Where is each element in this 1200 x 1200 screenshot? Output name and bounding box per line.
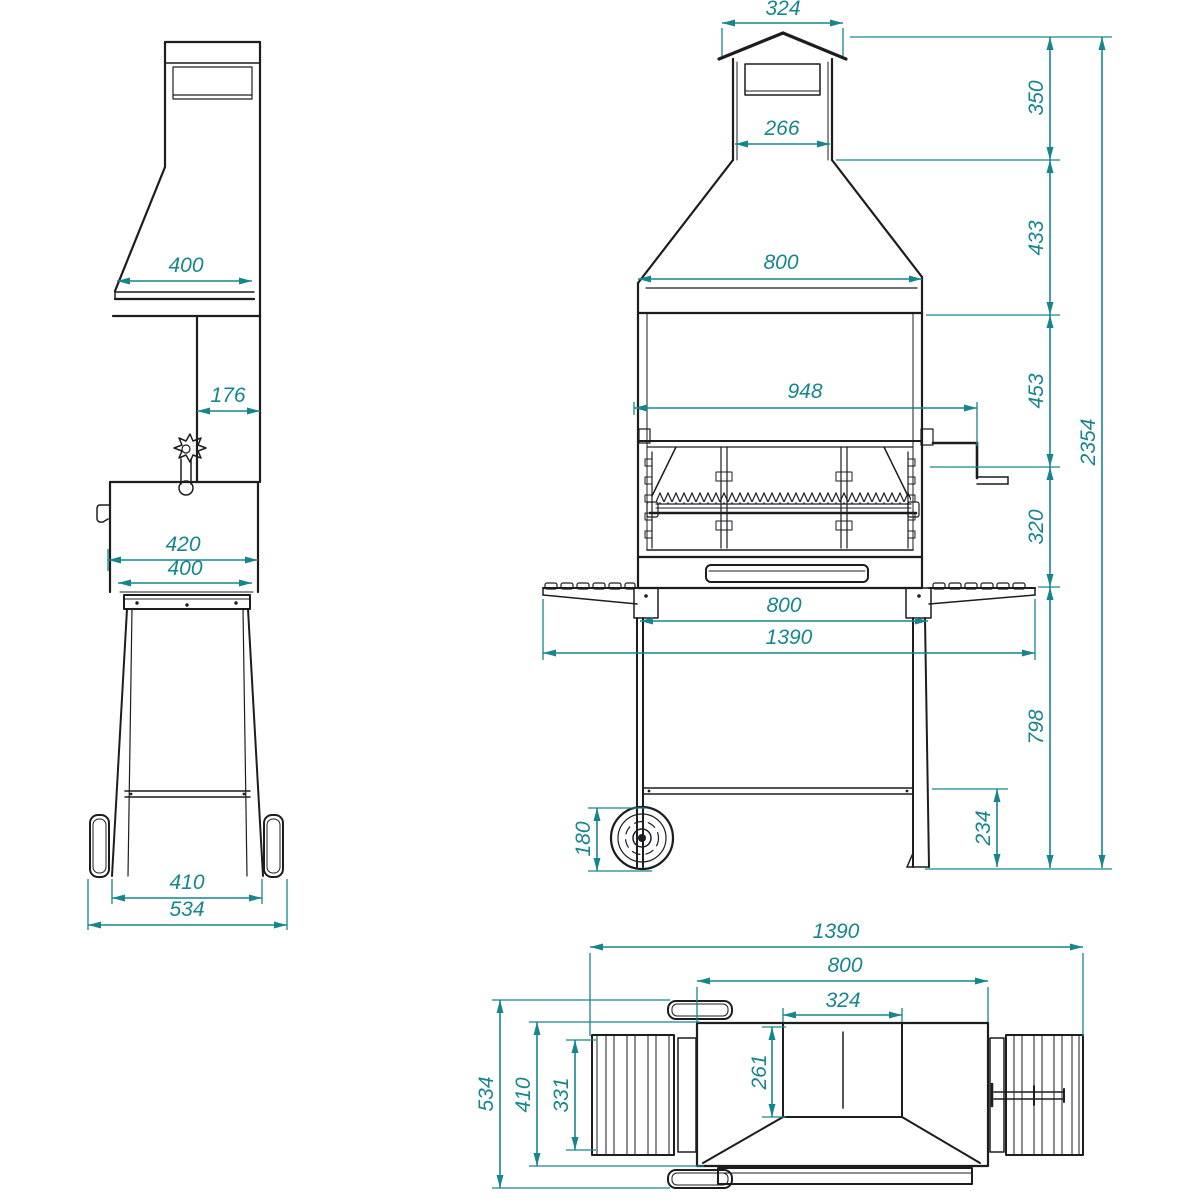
dim-top-flue-width: 324 (825, 989, 860, 1012)
dim-side-overall-depth: 534 (169, 898, 204, 921)
front-view: 324 266 800 948 350 433 453 (543, 0, 1112, 871)
front-view-outline (543, 33, 1035, 869)
dim-side-firebox-depth-inner: 400 (167, 557, 202, 580)
dim-front-leg-height: 798 (1025, 709, 1048, 744)
side-view: 400 176 420 400 410 534 (88, 42, 287, 930)
dim-front-cap-height: 350 (1025, 80, 1048, 115)
dim-side-duct-depth: 176 (210, 384, 245, 407)
dim-front-flue-width: 266 (763, 117, 799, 140)
dim-top-body-depth: 410 (512, 1077, 535, 1112)
dim-front-hood-width: 800 (763, 251, 798, 274)
dim-top-shelf-depth: 331 (550, 1077, 573, 1112)
dim-front-under-zone-height: 320 (1025, 509, 1048, 544)
dim-top-overall-width: 1390 (813, 920, 860, 943)
dim-front-leg-spacing: 800 (766, 594, 801, 617)
top-view: 1390 800 324 261 331 410 (475, 920, 1083, 1188)
dim-front-overall-height: 2354 (1077, 419, 1100, 467)
dim-front-brace-height: 234 (972, 810, 995, 846)
dim-top-overall-depth: 534 (475, 1076, 498, 1111)
side-view-outline (90, 42, 283, 877)
dim-side-leg-stance: 410 (169, 871, 204, 894)
dim-top-body-width: 800 (827, 954, 862, 977)
dim-side-firebox-depth-outer: 420 (165, 533, 200, 556)
dim-front-hood-height: 433 (1025, 220, 1048, 255)
bbq-dimension-drawing: 400 176 420 400 410 534 (0, 0, 1200, 1200)
dim-front-grill-zone-height: 453 (1025, 373, 1048, 408)
dim-front-cap-width: 324 (765, 0, 800, 20)
top-view-outline (592, 1001, 1083, 1188)
technical-drawing-page: 400 176 420 400 410 534 (0, 0, 1200, 1200)
dim-top-flue-depth: 261 (748, 1054, 771, 1090)
dim-front-spit-width: 948 (787, 380, 822, 403)
dim-front-overall-width: 1390 (766, 626, 813, 649)
dim-side-hood-depth: 400 (168, 254, 203, 277)
dim-front-wheel-diameter: 180 (572, 821, 595, 856)
top-view-dimensions: 1390 800 324 261 331 410 (475, 920, 1083, 1188)
